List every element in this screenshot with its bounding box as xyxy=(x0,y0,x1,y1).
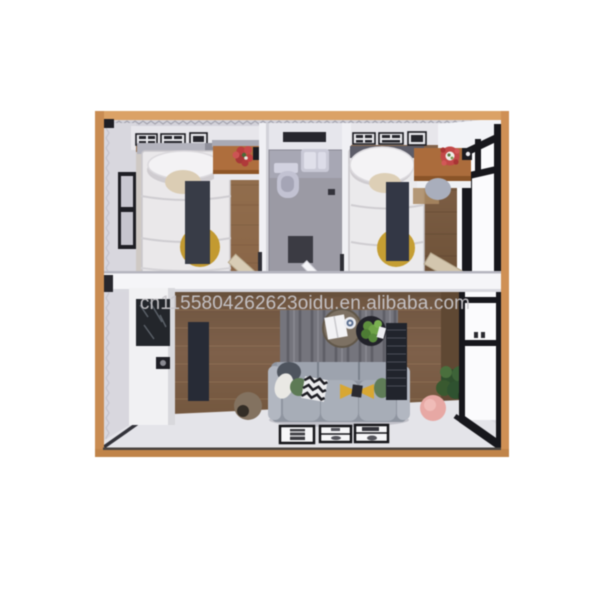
svg-text:cn1155804262623oidu.en.alibaba: cn1155804262623oidu.en.alibaba.com xyxy=(140,293,470,314)
